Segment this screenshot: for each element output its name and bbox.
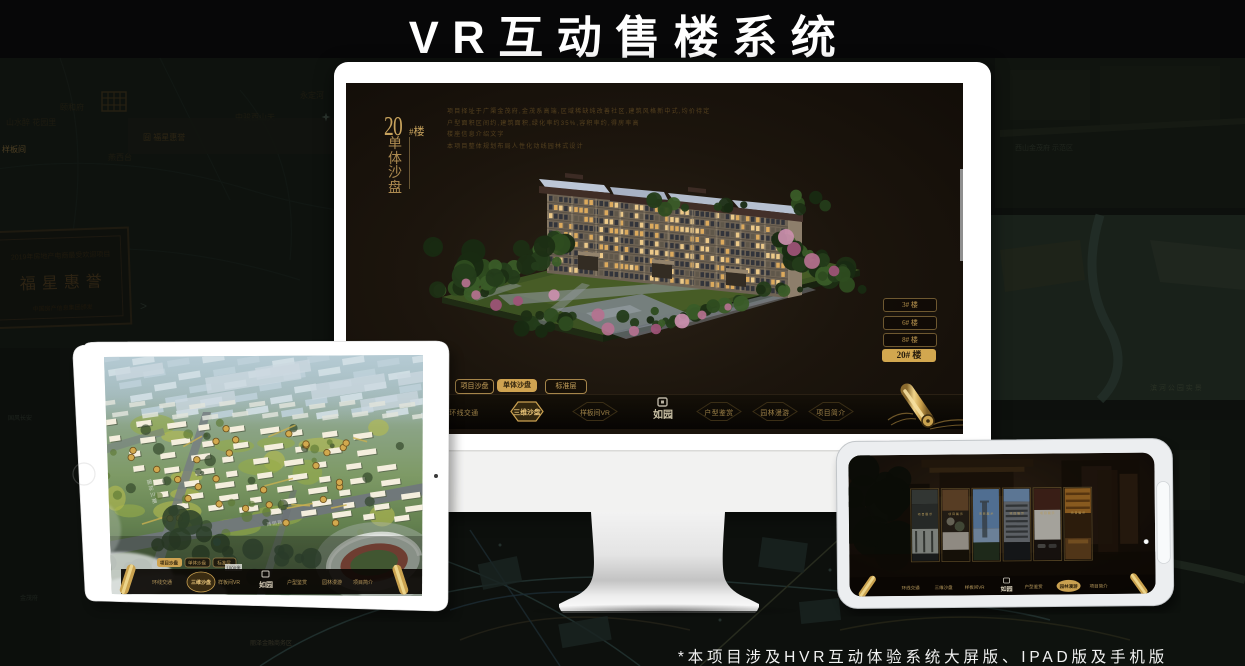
svg-text:>: > [140, 299, 147, 313]
svg-text:丽泽金融商务区: 丽泽金融商务区 [250, 639, 292, 647]
svg-text:园林漫游: 园林漫游 [760, 408, 789, 417]
svg-text:单体沙盘: 单体沙盘 [188, 560, 206, 567]
svg-text:山水醉 花园里: 山水醉 花园里 [6, 117, 56, 127]
svg-text:样板间VR: 样板间VR [580, 408, 610, 417]
svg-text:如园: 如园 [259, 580, 273, 589]
svg-text:项目沙盘: 项目沙盘 [160, 560, 178, 567]
svg-text:囼 福星惠誉: 囼 福星惠誉 [143, 132, 185, 142]
svg-text:如园: 如园 [653, 408, 673, 421]
svg-text:样板间VR: 样板间VR [218, 579, 240, 586]
svg-text:三维沙盘: 三维沙盘 [191, 579, 211, 586]
svg-text:园林漫游: 园林漫游 [322, 579, 342, 586]
svg-text:永定河: 永定河 [300, 90, 324, 100]
svg-text:项目简介: 项目简介 [816, 408, 845, 417]
svg-text:户型鉴赏: 户型鉴赏 [287, 579, 307, 586]
svg-text:金茂府: 金茂府 [20, 594, 38, 602]
svg-text:滨 河 公 园 实 景: 滨 河 公 园 实 景 [1150, 383, 1202, 392]
svg-text:环线交通: 环线交通 [152, 579, 172, 586]
svg-text:三维沙盘: 三维沙盘 [513, 408, 540, 417]
svg-text:西山金茂府 示范区: 西山金茂府 示范区 [1015, 143, 1073, 152]
svg-text:福星惠誉: 福星惠誉 [20, 272, 109, 293]
svg-text:颐和府: 颐和府 [60, 102, 84, 112]
svg-text:户型鉴赏: 户型鉴赏 [704, 408, 733, 417]
svg-text:国风长安: 国风长安 [8, 414, 32, 422]
svg-text:项目简介: 项目简介 [353, 579, 373, 586]
svg-text:如园: 如园 [1001, 585, 1013, 593]
svg-text:样板间: 样板间 [2, 144, 26, 154]
